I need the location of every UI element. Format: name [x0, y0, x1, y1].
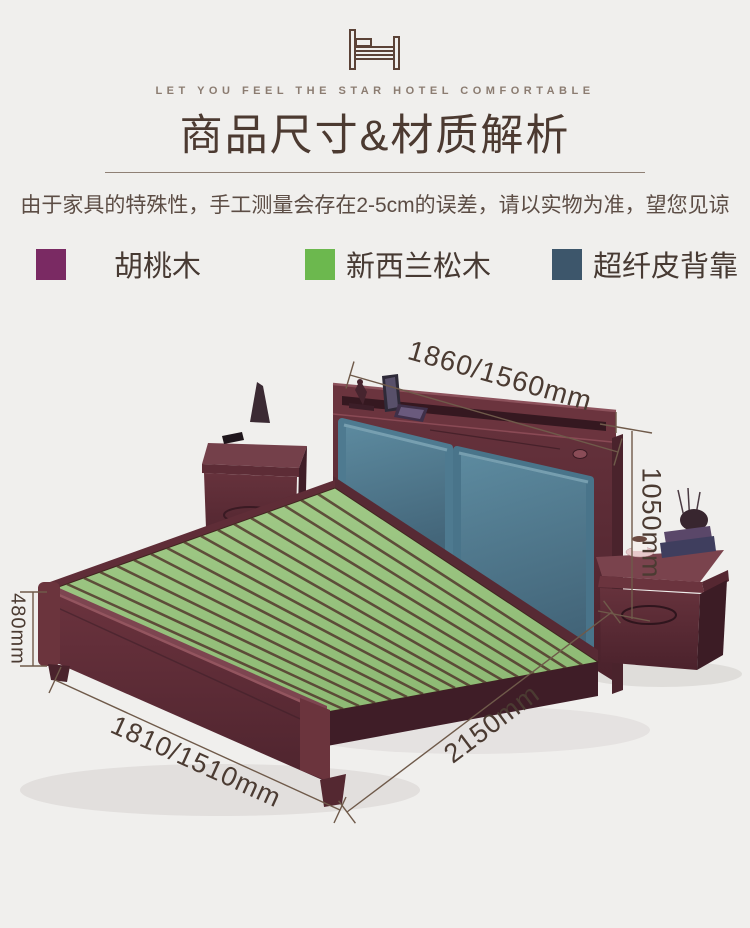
tagline: LET YOU FEEL THE STAR HOTEL COMFORTABLE	[0, 85, 750, 97]
legend-item-nz-pine: 新西兰松木	[305, 243, 491, 285]
pine-color-swatch	[305, 249, 335, 280]
dim-label-footboard-height: 480mm	[6, 593, 29, 665]
material-legend: 胡桃木 新西兰松木 超纤皮背靠	[0, 243, 750, 277]
headboard-knob	[573, 450, 587, 459]
footboard-left-post	[38, 582, 60, 666]
header: LET YOU FEEL THE STAR HOTEL COMFORTABLE …	[0, 0, 750, 219]
legend-item-walnut: 胡桃木	[36, 243, 201, 285]
title-divider	[105, 172, 645, 173]
disclaimer-text: 由于家具的特殊性，手工测量会存在2-5cm的误差，请以实物为准，望您见谅	[0, 189, 750, 219]
ornament	[250, 382, 270, 423]
legend-label: 新西兰松木	[346, 243, 491, 285]
footboard-right-post	[300, 698, 330, 782]
legend-label: 胡桃木	[114, 243, 201, 285]
small-decor	[222, 432, 244, 444]
legend-label: 超纤皮背靠	[593, 243, 738, 285]
dim-label-headboard-height: 1050mm	[636, 467, 667, 578]
bed-illustration	[0, 330, 750, 928]
bed-dimension-diagram: 1860/1560mm 1050mm 480mm 1810/1510mm 215…	[0, 330, 750, 928]
walnut-color-swatch	[36, 249, 66, 280]
product-infographic-page: LET YOU FEEL THE STAR HOTEL COMFORTABLE …	[0, 0, 750, 928]
legend-item-microfiber: 超纤皮背靠	[552, 243, 738, 285]
page-title: 商品尺寸&材质解析	[0, 101, 750, 163]
bed-icon	[0, 28, 750, 77]
microfiber-color-swatch	[552, 249, 582, 280]
